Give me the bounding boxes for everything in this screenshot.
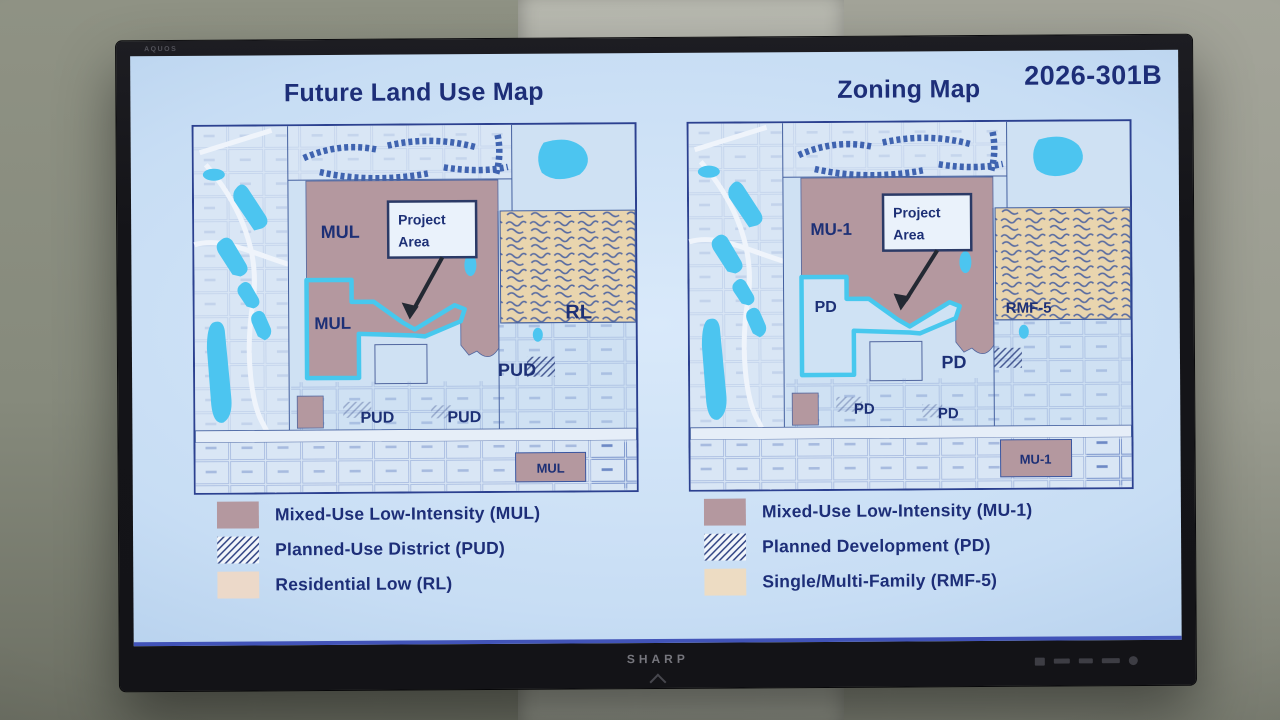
indicator-icon — [1035, 657, 1045, 665]
monitor-bezel: SHARP — [120, 640, 1196, 692]
zone-top-label: MU-1 — [810, 220, 852, 239]
hatch-area — [994, 348, 1022, 368]
legend-label: Residential Low (RL) — [275, 573, 452, 595]
callout-line1: Project — [398, 211, 446, 227]
south-strip — [690, 425, 1131, 490]
indicator-icon — [1079, 658, 1093, 663]
callout-line2: Area — [398, 233, 429, 249]
case-number: 2026-301B — [1024, 60, 1162, 92]
mid-right-label: PUD — [498, 360, 536, 380]
bottom-strip-label: MU-1 — [1020, 452, 1052, 467]
legend-label: Mixed-Use Low-Intensity (MU-1) — [762, 500, 1033, 523]
future-land-use-map: MUL MUL RL PUD PUD PUD MUL Project Area — [192, 122, 639, 495]
legend-item: Single/Multi-Family (RMF-5) — [704, 567, 1033, 596]
legend-swatch-pud-hatch — [217, 536, 259, 563]
legend-swatch-rl — [217, 571, 259, 598]
bottom-a-label: PUD — [360, 410, 394, 427]
legend-label: Planned Development (PD) — [762, 535, 991, 557]
legend-item: Mixed-Use Low-Intensity (MUL) — [217, 500, 541, 529]
lobe-label: PD — [814, 299, 836, 316]
legend-item: Planned Development (PD) — [704, 532, 1033, 561]
bottom-b-label: PD — [938, 405, 959, 422]
callout-line1: Project — [893, 204, 941, 220]
tv-screen: Future Land Use Map Zoning Map 2026-301B — [130, 50, 1182, 646]
zoning-map: MU-1 PD RMF-5 PD PD PD MU-1 Project Area — [687, 119, 1134, 492]
legend-label: Mixed-Use Low-Intensity (MUL) — [275, 503, 541, 526]
photo-stage: AQUOS Future Land Use Map Zoning Map 202… — [0, 0, 1280, 720]
monitor-model-badge: AQUOS — [144, 46, 177, 53]
north-parcel-strip — [288, 125, 512, 180]
bezel-indicator-icons — [1035, 656, 1138, 666]
legend-swatch-pd-hatch — [704, 533, 746, 560]
mid-right-label: PD — [941, 352, 966, 372]
legend-swatch-mul — [217, 501, 259, 528]
left-map-legend: Mixed-Use Low-Intensity (MUL) Planned-Us… — [217, 500, 541, 607]
bottom-b-label: PUD — [447, 409, 481, 426]
indicator-icon — [1054, 658, 1070, 663]
legend-swatch-rmf5 — [704, 568, 746, 595]
tv-monitor: AQUOS Future Land Use Map Zoning Map 202… — [116, 35, 1196, 692]
legend-item: Planned-Use District (PUD) — [217, 535, 541, 564]
bezel-chevron-icon — [651, 672, 665, 686]
zone-top-label: MUL — [321, 222, 360, 242]
legend-swatch-mu1 — [704, 498, 746, 525]
indicator-icon — [1102, 658, 1120, 663]
bottom-a-label: PD — [854, 401, 875, 418]
residential-label: RL — [565, 301, 592, 323]
north-parcel-strip — [783, 122, 1007, 177]
lobe-label: MUL — [314, 314, 351, 333]
legend-item: Residential Low (RL) — [217, 570, 541, 599]
left-map-title: Future Land Use Map — [191, 77, 636, 109]
callout-line2: Area — [893, 226, 924, 242]
residential-label: RMF-5 — [1006, 300, 1052, 317]
right-map-legend: Mixed-Use Low-Intensity (MU-1) Planned D… — [704, 497, 1033, 604]
legend-item: Mixed-Use Low-Intensity (MU-1) — [704, 497, 1033, 526]
legend-label: Single/Multi-Family (RMF-5) — [762, 570, 997, 592]
south-strip — [195, 428, 636, 493]
indicator-icon — [1129, 656, 1138, 665]
bottom-strip-label: MUL — [537, 461, 565, 476]
legend-label: Planned-Use District (PUD) — [275, 538, 505, 560]
